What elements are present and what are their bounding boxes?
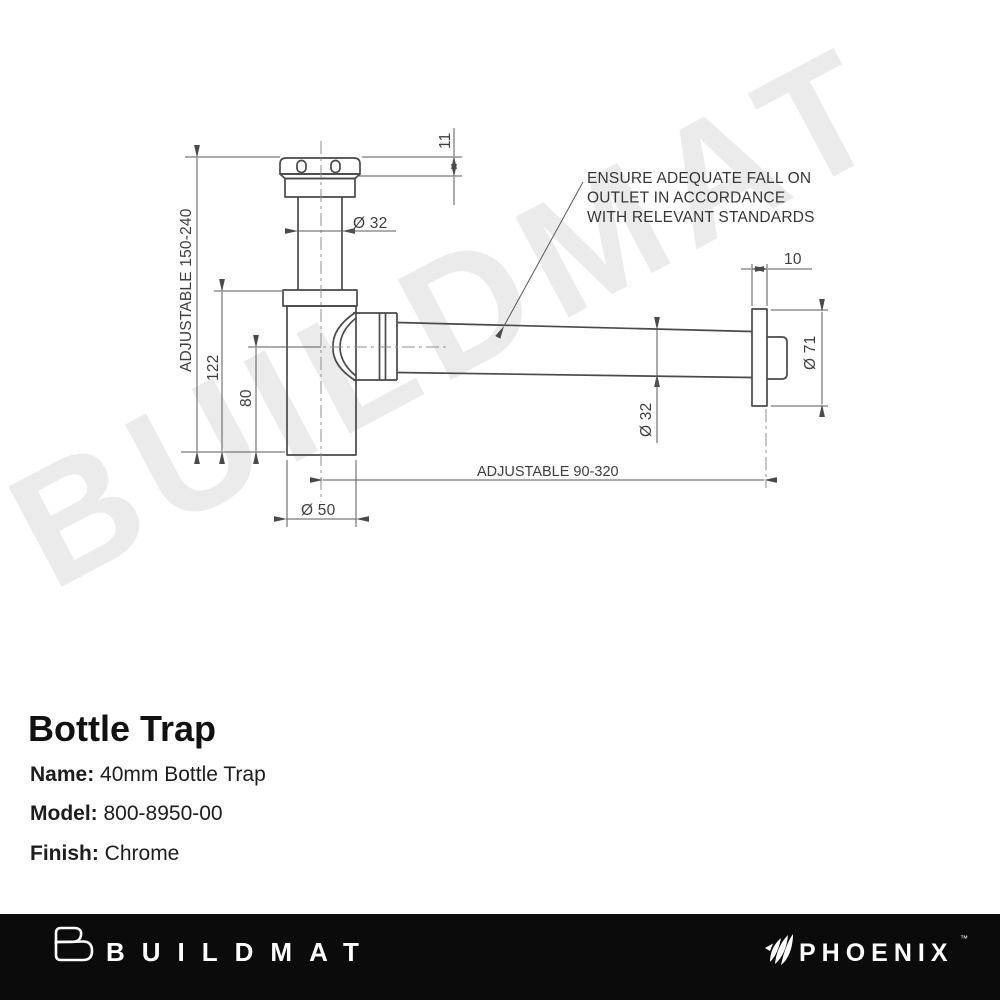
dim-pipe-diameter: Ø 32 (638, 403, 655, 437)
finish-label: Finish: (30, 842, 99, 865)
name-label: Name: (30, 763, 94, 786)
nut-facet-right (331, 161, 340, 173)
dim-flange-thickness: 10 (784, 251, 802, 268)
wall-socket (767, 337, 787, 379)
dim-nut-height: 11 (437, 133, 454, 150)
inlet-nut (280, 158, 360, 174)
product-title: Bottle Trap (28, 708, 216, 750)
phoenix-logo-text: PHOENIX (799, 939, 954, 968)
model-label: Model: (30, 802, 98, 825)
product-finish-line: Finish: Chrome (30, 842, 179, 866)
phoenix-trademark: ™ (960, 934, 968, 943)
dim-adjustable-vertical: ADJUSTABLE 150-240 (178, 208, 195, 372)
footer-bar: BUILDMAT PHOENIX ™ (0, 914, 1000, 1000)
buildmat-logo-text: BUILDMAT (106, 937, 376, 968)
dim-outlet-height: 80 (238, 389, 255, 407)
model-value: 800-8950-00 (104, 802, 223, 825)
dim-inlet-diameter: Ø 32 (353, 215, 387, 232)
note-line-1: ENSURE ADEQUATE FALL ON (587, 170, 811, 187)
name-value: 40mm Bottle Trap (100, 763, 266, 786)
product-name-line: Name: 40mm Bottle Trap (30, 763, 266, 787)
note-line-2: OUTLET IN ACCORDANCE (587, 190, 785, 207)
buildmat-logo-icon (50, 924, 96, 964)
dim-adjustable-horizontal: ADJUSTABLE 90-320 (477, 464, 619, 480)
note-line-3: WITH RELEVANT STANDARDS (587, 209, 815, 226)
phoenix-logo-icon (757, 922, 795, 966)
dim-flange-diameter: Ø 71 (802, 336, 819, 370)
product-model-line: Model: 800-8950-00 (30, 802, 223, 826)
spec-sheet-page: BUILDMAT (0, 0, 1000, 1000)
finish-value: Chrome (105, 842, 180, 865)
inlet-collar (285, 179, 355, 198)
nut-facet-left (297, 161, 306, 173)
watermark-text: BUILDMAT (0, 9, 917, 623)
wall-flange (752, 309, 767, 406)
dim-body-height: 122 (205, 355, 222, 381)
technical-drawing: BUILDMAT (0, 0, 1000, 650)
dim-body-diameter: Ø 50 (301, 502, 336, 519)
